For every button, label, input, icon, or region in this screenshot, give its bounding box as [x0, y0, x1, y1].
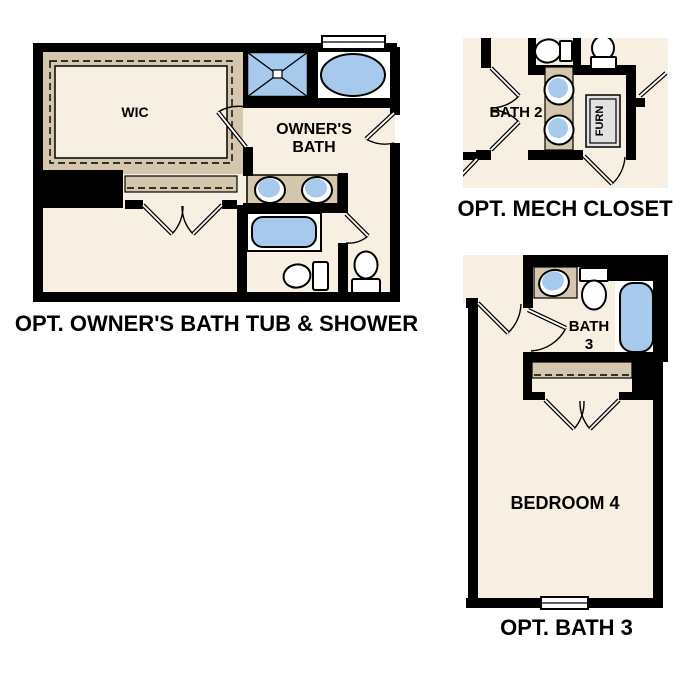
- hall-floor: [463, 255, 525, 303]
- toilet: [352, 252, 380, 294]
- plan-owners-bath-tub-shower: WIC OWNER'S BATH: [33, 36, 400, 302]
- plan-opt-bath3: BATH 3 BEDROOM 4: [463, 255, 668, 609]
- furnace-unit: FURN: [586, 95, 620, 147]
- bath3-sink: [534, 267, 577, 300]
- floor-plan-sheet: WIC OWNER'S BATH: [0, 0, 687, 687]
- bath3-label-line1: BATH: [569, 318, 610, 335]
- furnace-label: FURN: [594, 106, 606, 137]
- caption-owners-bath: OPT. OWNER'S BATH TUB & SHOWER: [0, 311, 433, 337]
- floor-plan-drawing: WIC OWNER'S BATH: [0, 0, 687, 687]
- toilet: [591, 36, 616, 69]
- caption-mech-closet: OPT. MECH CLOSET: [440, 196, 687, 222]
- vanity-sink: [255, 177, 285, 203]
- caption-opt-bath3: OPT. BATH 3: [450, 615, 683, 641]
- vanity-sink: [545, 76, 574, 105]
- bath2-label: BATH 2: [489, 104, 542, 121]
- toilet: [580, 268, 608, 310]
- shower-drain: [273, 70, 282, 78]
- bathtub: [620, 283, 653, 352]
- vanity-sink: [545, 116, 574, 145]
- closet-shelf: [532, 362, 632, 378]
- window: [322, 36, 385, 49]
- wic-label: WIC: [121, 104, 148, 120]
- vanity-sink: [302, 177, 332, 203]
- oval-tub: [321, 54, 385, 96]
- bathtub: [252, 217, 316, 247]
- bath3-label-line2: 3: [585, 336, 593, 353]
- owners-bath-label-line2: BATH: [292, 139, 335, 156]
- shower: [247, 52, 308, 97]
- owners-bath-label-line1: OWNER'S: [276, 121, 352, 138]
- linen-closet: [125, 176, 237, 192]
- window: [541, 597, 588, 609]
- bedroom4-label: BEDROOM 4: [510, 493, 619, 513]
- plan-mech-closet: FURN: [456, 36, 668, 188]
